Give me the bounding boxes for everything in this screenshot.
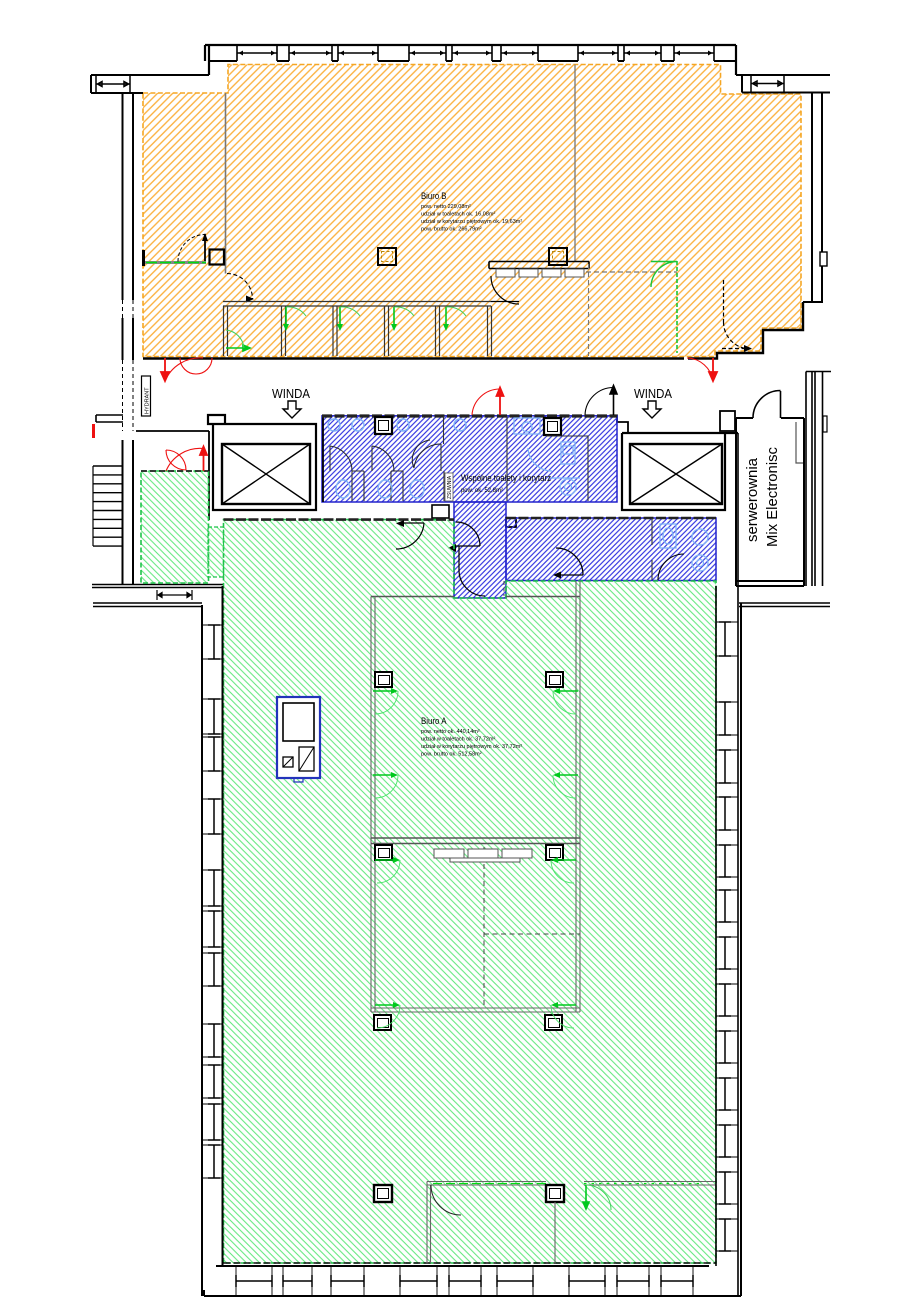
svg-text:serwerownia: serwerownia bbox=[744, 457, 761, 542]
svg-text:udział w korytarzu piętrowym o: udział w korytarzu piętrowym ok. 37,72m² bbox=[421, 744, 522, 750]
svg-text:Wspólne toalety i korytarz: Wspólne toalety i korytarz bbox=[461, 473, 551, 483]
svg-text:WINDA: WINDA bbox=[272, 386, 310, 401]
svg-text:WINDA: WINDA bbox=[634, 386, 672, 401]
svg-text:pow. netto ok. 440,14m²: pow. netto ok. 440,14m² bbox=[421, 729, 480, 735]
svg-text:Biuro B: Biuro B bbox=[421, 191, 447, 201]
svg-text:Mix Electronisc: Mix Electronisc bbox=[764, 447, 781, 547]
svg-text:ZSUWNIA: ZSUWNIA bbox=[447, 475, 453, 499]
svg-text:pow. brutto ok. 266,79m²: pow. brutto ok. 266,79m² bbox=[421, 227, 482, 233]
svg-text:pow. brutto ok. 512,58m²: pow. brutto ok. 512,58m² bbox=[421, 752, 482, 758]
svg-text:udział w toaletach ok. 37,72m²: udział w toaletach ok. 37,72m² bbox=[421, 737, 495, 743]
svg-text:HYDRANT: HYDRANT bbox=[145, 387, 151, 414]
svg-text:pow. netto 229,08m²: pow. netto 229,08m² bbox=[421, 204, 471, 210]
svg-text:udział w korytarzu piętrowym o: udział w korytarzu piętrowym ok. 19,63m² bbox=[421, 219, 522, 225]
svg-text:udział w toaletach ok. 16,08m²: udział w toaletach ok. 16,08m² bbox=[421, 212, 495, 218]
svg-text:pow. ok. 52,8m²: pow. ok. 52,8m² bbox=[461, 488, 503, 494]
svg-text:Biuro A: Biuro A bbox=[421, 716, 447, 726]
